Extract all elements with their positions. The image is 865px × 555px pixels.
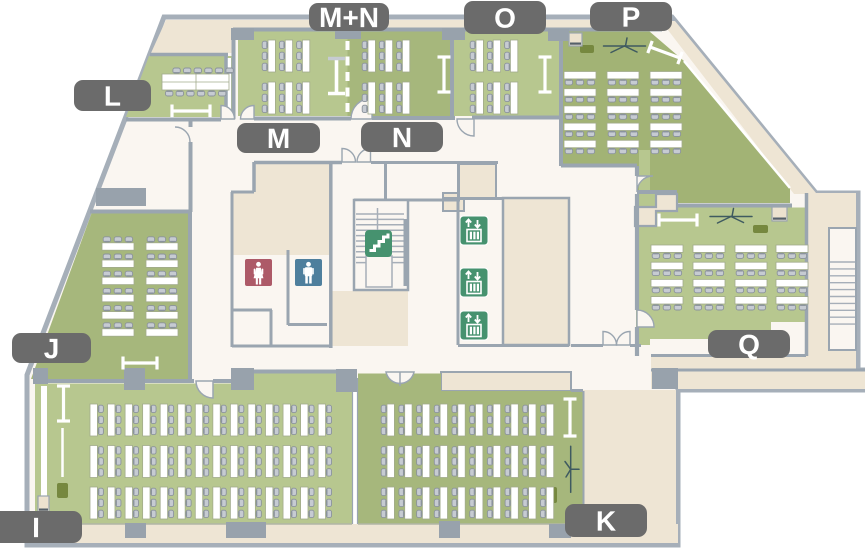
svg-text:I: I: [32, 512, 40, 543]
svg-text:J: J: [44, 333, 60, 364]
svg-text:Q: Q: [738, 329, 760, 360]
svg-text:L: L: [104, 81, 121, 112]
svg-text:N: N: [392, 122, 412, 153]
svg-text:M: M: [267, 123, 290, 154]
svg-text:O: O: [494, 3, 516, 34]
svg-text:K: K: [596, 506, 616, 537]
svg-text:P: P: [622, 2, 641, 33]
svg-text:M+N: M+N: [319, 2, 379, 33]
